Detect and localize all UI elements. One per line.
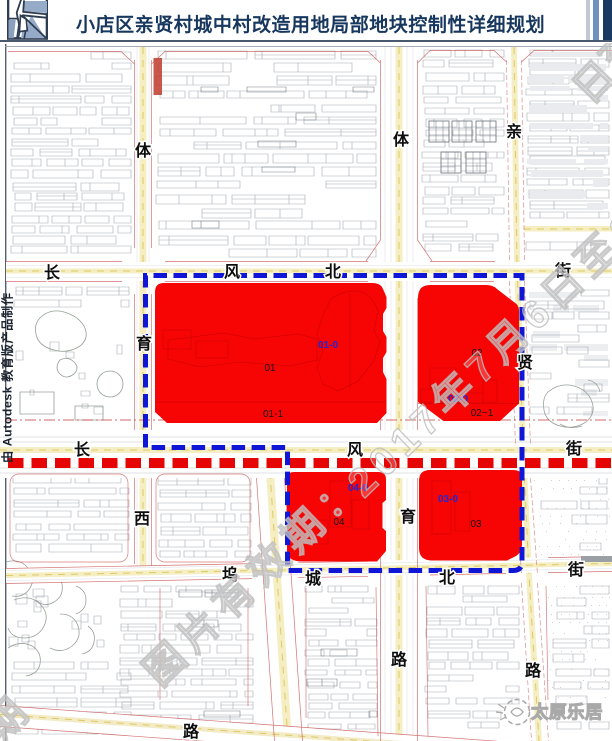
svg-text:西: 西 — [134, 510, 150, 528]
svg-text:街: 街 — [565, 439, 582, 458]
svg-text:01-1: 01-1 — [263, 409, 283, 420]
svg-text:体: 体 — [393, 130, 410, 149]
svg-text:路: 路 — [391, 650, 408, 669]
svg-text:路: 路 — [183, 722, 200, 741]
svg-text:城: 城 — [305, 570, 321, 588]
svg-text:北: 北 — [439, 569, 455, 587]
svg-text:02~1: 02~1 — [471, 408, 494, 419]
svg-text:街: 街 — [567, 560, 584, 579]
svg-text:育: 育 — [400, 507, 416, 526]
svg-text:长: 长 — [74, 440, 91, 459]
svg-text:亲: 亲 — [506, 122, 522, 141]
svg-text:太原乐居: 太原乐居 — [531, 702, 603, 722]
svg-text:01: 01 — [264, 363, 276, 374]
svg-text:03-0: 03-0 — [438, 494, 458, 505]
svg-text:01-0: 01-0 — [318, 340, 338, 351]
svg-text:03: 03 — [470, 519, 482, 530]
svg-text:北: 北 — [325, 263, 341, 281]
svg-text:路: 路 — [525, 661, 542, 680]
svg-text:长: 长 — [44, 263, 61, 282]
svg-text:由 Autodesk 教育版产品制作: 由 Autodesk 教育版产品制作 — [0, 292, 15, 463]
svg-text:体: 体 — [135, 141, 152, 160]
svg-text:风: 风 — [224, 263, 240, 281]
svg-text:育: 育 — [136, 334, 152, 353]
